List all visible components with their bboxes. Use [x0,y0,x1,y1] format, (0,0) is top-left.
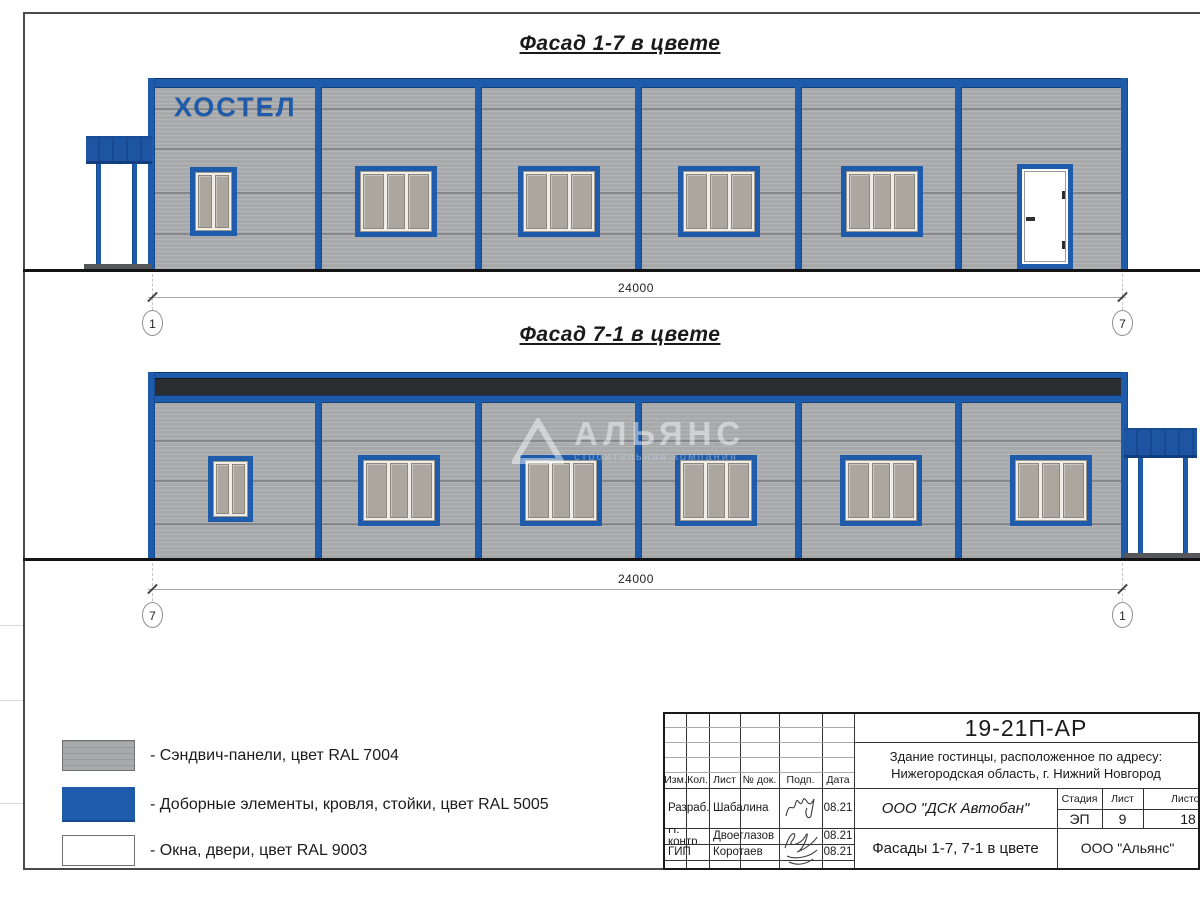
corner-trim-right [1121,372,1128,558]
corner-trim-left [148,372,155,558]
legend-swatch-white [62,835,135,866]
window-pane [710,174,728,229]
mullion [635,87,642,269]
window-pane [1063,463,1084,518]
row-date: 08.21 [822,828,854,844]
grid-line [665,742,854,743]
corner-trim-right [1121,78,1128,269]
company-name: ООО "ДСК Автобан" [854,788,1057,828]
signature-icon [782,794,820,822]
mullion [955,87,962,269]
margin-divider [0,625,23,626]
window-pane [1018,463,1039,518]
legend-swatch-panels [62,740,135,771]
window-small [208,456,253,522]
dimension-line [148,589,1126,590]
extension-line [152,563,153,601]
window-triple [518,166,600,237]
grid-line [665,757,854,758]
drawing-sheet: Фасад 1-7 в цвете ХОСТЕЛ [0,0,1200,900]
stage-header: Стадия [1057,788,1102,809]
col-header-date: Дата [822,772,854,788]
col-header-doc: № док. [740,772,779,788]
extension-line [152,274,153,310]
sheets-header: Листов [1143,788,1200,809]
window-pane [848,463,869,518]
canopy-post [1138,458,1143,558]
row-name: Шабалина [713,788,779,828]
row-name: Коротаев [713,844,779,860]
project-address-line1: Здание гостинцы, расположенное по адресу… [890,748,1162,765]
window-pane [526,174,547,229]
window-pane [686,174,707,229]
window-pane [411,463,432,518]
roof-dark-band [155,378,1121,396]
row-role: ГИП [668,844,712,860]
canopy-post [132,164,137,267]
axis-marker-right: 1 [1112,602,1133,628]
window-triple [358,455,440,526]
col-header-sign: Подп. [779,772,822,788]
window-pane [728,463,749,518]
signature-icon [779,826,821,868]
organization-name: ООО "Альянс" [1057,828,1198,868]
window-pane [894,174,915,229]
col-header-list: Лист [709,772,740,788]
mullion [315,402,322,558]
title-block: Изм. Кол. Лист № док. Подп. Дата Разраб.… [663,712,1200,870]
window-triple [520,455,602,526]
ground-line [23,269,1200,272]
frame-left [23,12,25,870]
col-header-kol: Кол. [686,772,709,788]
window-pane [408,174,429,229]
legend-label: - Окна, двери, цвет RAL 9003 [150,842,367,860]
window-pane [872,463,890,518]
facade-1-7-drawing: ХОСТЕЛ [148,78,1128,269]
canopy-post [1183,458,1188,558]
window-pane [216,464,229,514]
window-triple [355,166,437,237]
mullion [475,87,482,269]
door-hinge-icon [1062,191,1065,199]
window-pane [571,174,592,229]
window-small [190,167,237,236]
window-pane [1042,463,1060,518]
legend-label: - Сэндвич-панели, цвет RAL 7004 [150,747,399,765]
dimension-line [148,297,1126,298]
facade-7-1-drawing [148,372,1128,558]
project-address: Здание гостинцы, расположенное по адресу… [854,742,1198,788]
row-name: Двоеглазов [713,828,779,844]
window-pane [552,463,570,518]
canopy-right [1124,428,1197,458]
corner-trim-left [148,78,155,269]
window-pane [707,463,725,518]
margin-divider [0,700,23,701]
window-pane [873,174,891,229]
window-pane [390,463,408,518]
window-pane [387,174,405,229]
window-pane [363,174,384,229]
window-triple [841,166,923,237]
ground-line [23,558,1200,561]
grid-line [665,727,854,728]
facade-7-1-title: Фасад 7-1 в цвете [0,323,1200,347]
window-pane [198,175,212,228]
door-handle-icon [1026,217,1035,221]
window-pane [573,463,594,518]
dimension-value: 24000 [618,572,654,586]
mullion [955,402,962,558]
window-pane [215,175,229,228]
legend-swatch-blue [62,787,135,822]
row-date: 08.21 [822,788,854,828]
window-pane [550,174,568,229]
mullion [795,402,802,558]
window-pane [893,463,914,518]
project-address-line2: Нижегородская область, г. Нижний Новгоро… [891,765,1161,782]
facade-1-7-title: Фасад 1-7 в цвете [0,32,1200,56]
grid-line [665,860,854,861]
col-header-izm: Изм. [665,772,686,788]
window-pane [683,463,704,518]
entrance-door [1017,164,1073,269]
window-triple [675,455,757,526]
mullion [315,87,322,269]
stage-value: ЭП [1057,809,1102,828]
sheets-value: 18 [1143,809,1200,828]
drawing-title: Фасады 1-7, 7-1 в цвете [854,828,1057,868]
margin-divider [0,803,23,804]
sheet-header: Лист [1102,788,1143,809]
sheet-value: 9 [1102,809,1143,828]
window-pane [366,463,387,518]
canopy-post [96,164,101,267]
row-date: 08.21 [822,844,854,860]
extension-line [1122,563,1123,601]
frame-top [23,12,1200,14]
door-hinge-icon [1062,241,1065,249]
mullion [795,87,802,269]
window-pane [232,464,245,514]
document-number: 19-21П-АР [854,714,1198,742]
window-pane [528,463,549,518]
extension-line [1122,274,1123,310]
window-pane [849,174,870,229]
window-pane [731,174,752,229]
window-triple [840,455,922,526]
dimension-value: 24000 [618,281,654,295]
window-triple [678,166,760,237]
row-role: Разраб. [668,788,709,828]
legend-label: - Доборные элементы, кровля, стойки, цве… [150,796,549,814]
row-role: Н. контр. [668,828,712,844]
mullion [635,402,642,558]
canopy-left [86,136,152,164]
mullion [475,402,482,558]
hostel-sign: ХОСТЕЛ [174,92,297,123]
axis-marker-left: 7 [142,602,163,628]
window-triple [1010,455,1092,526]
